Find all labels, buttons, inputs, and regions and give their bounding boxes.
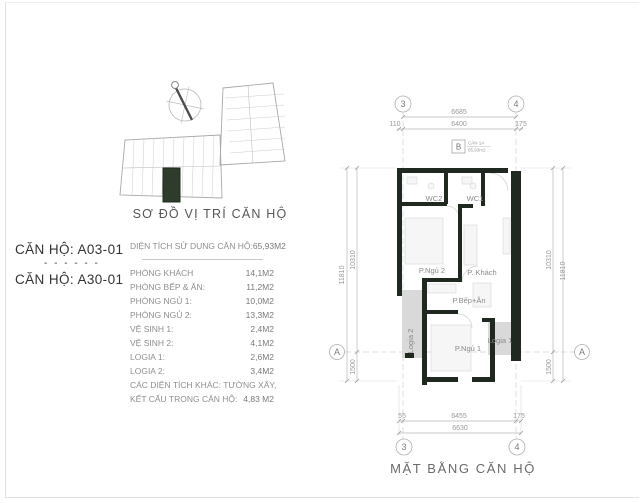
grid-4-bottom: 4 bbox=[514, 442, 519, 452]
dim-bot-total: 6630 bbox=[452, 425, 468, 432]
unit-type-tag: B CĂN 1A 65,93m2 bbox=[452, 140, 491, 154]
table-row: CÁC DIỆN TÍCH KHÁC: TƯỜNG XÂY, bbox=[130, 378, 274, 392]
dim-top-3: 175 bbox=[515, 121, 527, 128]
row-value: 2,4M2 bbox=[250, 322, 274, 336]
grid-3-top: 3 bbox=[400, 99, 405, 109]
room-label-logia1: Logia 1 bbox=[488, 336, 513, 345]
row-value: 3,4M2 bbox=[250, 364, 274, 378]
table-row-total: DIỆN TÍCH SỬ DỤNG CĂN HỘ: 65,93M2 bbox=[130, 240, 274, 252]
row-label: CÁC DIỆN TÍCH KHÁC: TƯỜNG XÂY, bbox=[130, 378, 276, 392]
room-label-wc1: WC1 bbox=[467, 194, 484, 203]
room-label-bed1: P.Ngủ 1 bbox=[455, 344, 481, 353]
row-value: 10,0M2 bbox=[246, 294, 274, 308]
grid-4-top: 4 bbox=[513, 99, 518, 109]
row-label: VỆ SINH 2: bbox=[130, 336, 173, 350]
row-label: PHÒNG NGỦ 1: bbox=[130, 294, 192, 308]
room-label-logia2: Logia 2 bbox=[406, 329, 415, 354]
dim-left-low: 1500 bbox=[350, 359, 357, 375]
dim-top-2: 6400 bbox=[451, 121, 467, 128]
dim-bot-3: 175 bbox=[513, 413, 525, 420]
floor-plan-drawing: 6685 110 6400 175 55 6455 175 6630 11810… bbox=[325, 85, 625, 460]
dimension-lines bbox=[347, 117, 563, 433]
room-label-wc2: WC2 bbox=[426, 194, 443, 203]
grid-3-bottom: 3 bbox=[401, 442, 406, 452]
building-outline bbox=[120, 83, 285, 198]
row-label: KẾT CẤU TRONG CĂN HỘ: bbox=[130, 392, 237, 406]
row-label: VỆ SINH 1: bbox=[130, 322, 173, 336]
row-label: PHÒNG NGỦ 2: bbox=[130, 308, 192, 322]
table-row: KẾT CẤU TRONG CĂN HỘ: 4,83 M2 bbox=[130, 392, 274, 406]
room-label-kitchen: P.Bếp+Ăn bbox=[452, 296, 485, 305]
highlighted-unit bbox=[163, 168, 180, 202]
unit-type-line1: CĂN 1A bbox=[468, 140, 484, 146]
dim-right-outer: 11810 bbox=[560, 261, 567, 280]
total-area-label: DIỆN TÍCH SỬ DỤNG CĂN HỘ: bbox=[130, 240, 253, 252]
unit-id-2: CĂN HỘ: A30-01 bbox=[15, 272, 123, 287]
unit-type-line2: 65,93m2 bbox=[468, 148, 486, 153]
unit-id-1: CĂN HỘ: A03-01 bbox=[15, 242, 123, 257]
floor-plan-caption: MẶT BẰNG CĂN HỘ bbox=[368, 461, 558, 476]
dim-right-inner: 10310 bbox=[546, 250, 553, 270]
total-area-value: 65,93M2 bbox=[253, 240, 286, 252]
dim-top-1: 110 bbox=[389, 121, 400, 128]
site-plan-caption: SƠ ĐỒ VỊ TRÍ CĂN HỘ bbox=[115, 207, 305, 221]
compass-icon bbox=[162, 82, 207, 128]
table-row: PHÒNG KHÁCH 14,1M2 bbox=[130, 266, 274, 280]
dim-bot-1: 55 bbox=[398, 413, 406, 420]
row-value: 13,3M2 bbox=[246, 308, 274, 322]
row-value: 2,6M2 bbox=[250, 350, 274, 364]
drawing-sheet: SƠ ĐỒ VỊ TRÍ CĂN HỘ CĂN HỘ: A03-01 - - -… bbox=[0, 0, 640, 503]
grid-a-left: A bbox=[334, 347, 340, 357]
dim-right-low: 1500 bbox=[546, 359, 553, 375]
table-row: VỆ SINH 2: 4,1M2 bbox=[130, 336, 274, 350]
dimension-ticks bbox=[345, 115, 565, 435]
row-label: LOGIA 1: bbox=[130, 350, 165, 364]
table-row: PHÒNG NGỦ 1: 10,0M2 bbox=[130, 294, 274, 308]
room-label-living: P. Khách bbox=[467, 268, 496, 277]
dim-left-outer: 11810 bbox=[339, 265, 346, 284]
row-value: 4,83 M2 bbox=[243, 392, 274, 406]
dim-top-total: 6685 bbox=[451, 109, 467, 116]
table-row: PHÒNG BẾP & ĂN: 11,2M2 bbox=[130, 280, 274, 294]
row-value: 11,2M2 bbox=[246, 280, 274, 294]
row-value: 4,1M2 bbox=[250, 336, 274, 350]
dim-bot-2: 6455 bbox=[451, 413, 467, 420]
table-row: LOGIA 2: 3,4M2 bbox=[130, 364, 274, 378]
row-value: 14,1M2 bbox=[246, 266, 274, 280]
room-label-bed2: P.Ngủ 2 bbox=[419, 266, 445, 275]
site-plan-drawing bbox=[70, 68, 330, 208]
table-divider bbox=[142, 259, 263, 260]
table-row: PHÒNG NGỦ 2: 13,3M2 bbox=[130, 308, 274, 322]
unit-type-letter: B bbox=[456, 143, 461, 152]
area-table: DIỆN TÍCH SỬ DỤNG CĂN HỘ: 65,93M2 PHÒNG … bbox=[130, 240, 274, 406]
table-row: LOGIA 1: 2,6M2 bbox=[130, 350, 274, 364]
grid-a-right: A bbox=[579, 347, 585, 357]
row-label: PHÒNG KHÁCH bbox=[130, 266, 193, 280]
dim-left-inner: 10310 bbox=[350, 250, 357, 270]
row-label: PHÒNG BẾP & ĂN: bbox=[130, 280, 205, 294]
unit-id-divider: - - - - - - bbox=[44, 258, 100, 269]
table-row: VỆ SINH 1: 2,4M2 bbox=[130, 322, 274, 336]
row-label: LOGIA 2: bbox=[130, 364, 165, 378]
